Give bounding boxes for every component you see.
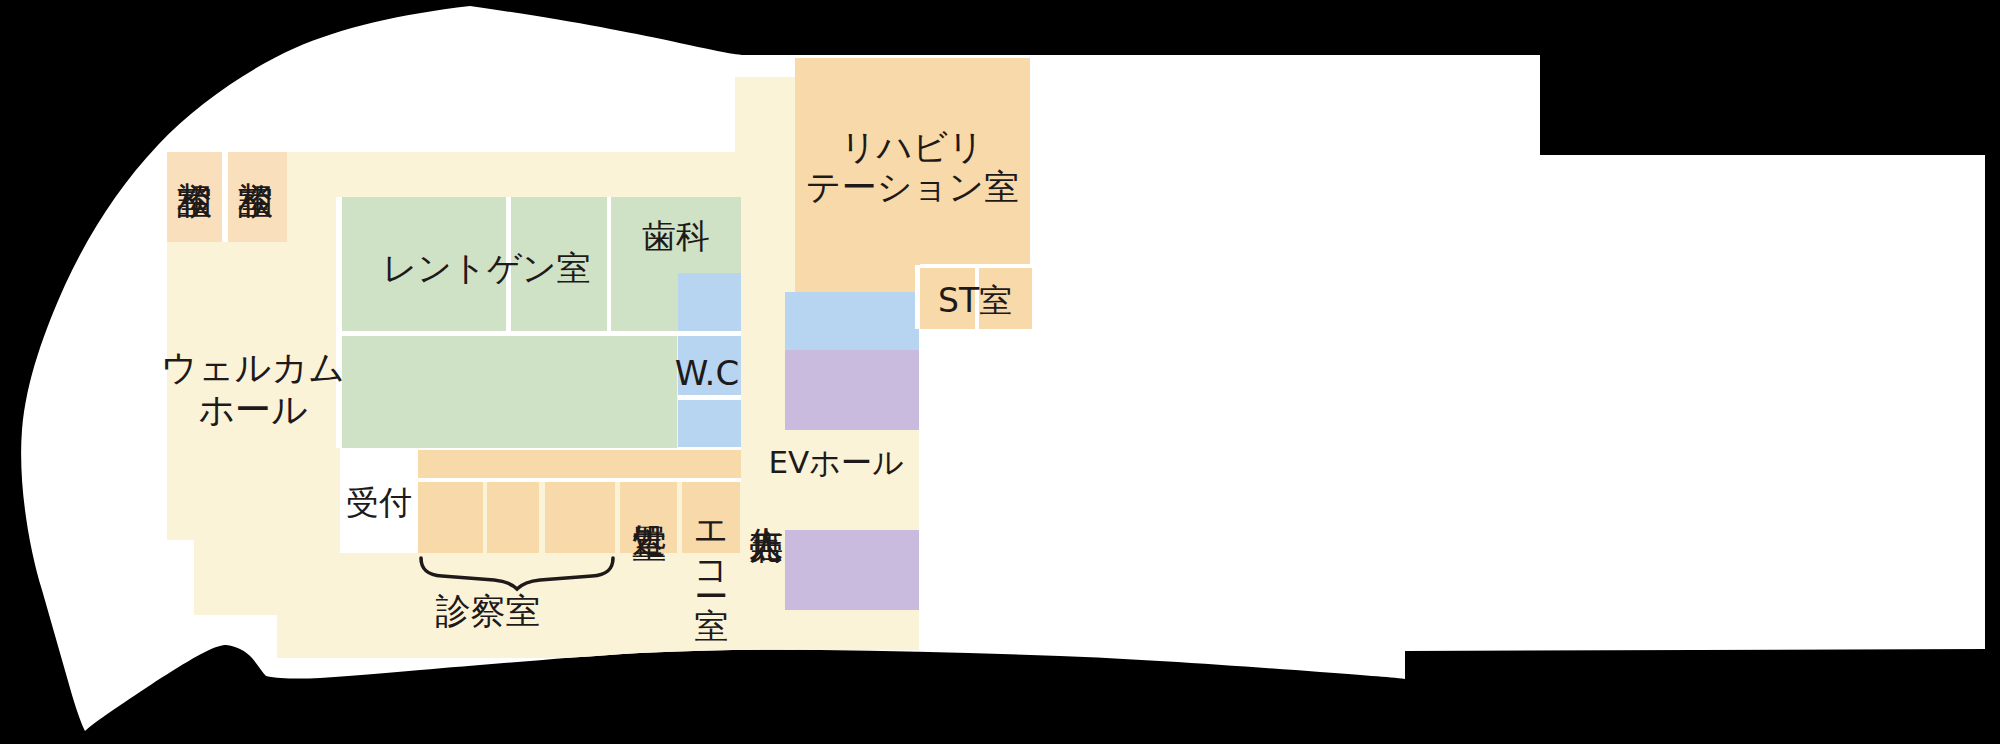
rehab-room-ext bbox=[795, 265, 916, 292]
exam-rooms-label: 診察室 bbox=[418, 591, 558, 632]
welcome-hall-label: ウェルカム ホール bbox=[155, 347, 351, 431]
consult-room-2 bbox=[228, 152, 287, 242]
exam-room-2 bbox=[487, 482, 539, 553]
reception-label: 受付 bbox=[340, 484, 418, 522]
elevator-blue-zone bbox=[785, 292, 919, 350]
wc-gap-2 bbox=[678, 447, 741, 450]
wc-label: W.C bbox=[660, 354, 754, 393]
floor-map-canvas: 相談室 相談室 レントゲン室 歯科 リハビリ テーション室 ST室 W.C ウェ… bbox=[0, 0, 2000, 744]
counter-strip bbox=[418, 450, 741, 478]
elevator-zone-lower bbox=[785, 530, 919, 610]
green-room-large bbox=[340, 336, 677, 448]
green-rows-gap bbox=[340, 331, 741, 336]
exam-rooms-brace bbox=[416, 554, 620, 594]
exam-room-3 bbox=[545, 482, 615, 553]
dental-room-label: 歯科 bbox=[611, 217, 741, 256]
echo-room-label: エコー室 bbox=[693, 501, 729, 579]
consult-gap bbox=[222, 152, 228, 242]
st-room-label: ST室 bbox=[916, 282, 1034, 320]
lower-right-floor bbox=[785, 610, 919, 650]
exam-room-1 bbox=[418, 482, 483, 553]
ev-hall-label: EVホール bbox=[744, 445, 928, 481]
consult-room-1 bbox=[167, 152, 222, 242]
xray-room-label: レントゲン室 bbox=[340, 249, 633, 288]
treatment-room bbox=[620, 482, 677, 553]
strip-boxes-gap bbox=[418, 478, 741, 482]
rehab-room-label: リハビリ テーション室 bbox=[795, 127, 1030, 207]
wc-lower bbox=[678, 400, 741, 447]
elevator-zone-upper bbox=[785, 350, 919, 430]
wc-upper bbox=[678, 273, 741, 331]
wc-gap-1 bbox=[678, 395, 741, 400]
